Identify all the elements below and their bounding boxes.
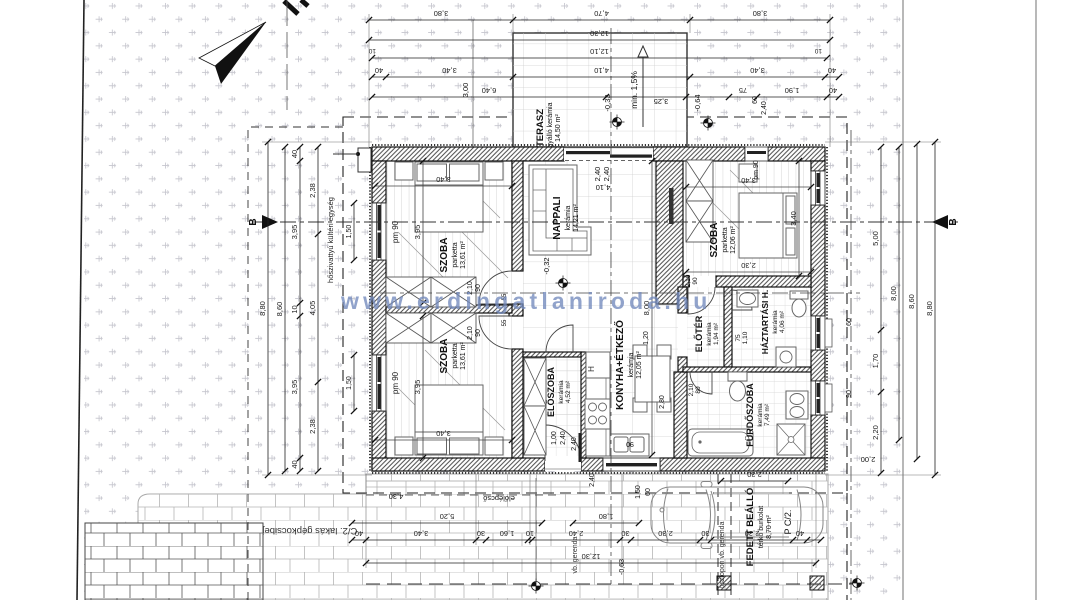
- svg-text:B: B: [248, 218, 259, 225]
- svg-text:2,40: 2,40: [761, 101, 768, 115]
- svg-text:3,80: 3,80: [434, 9, 449, 18]
- svg-text:kerámia: kerámia: [628, 352, 635, 377]
- svg-text:8,80: 8,80: [258, 301, 267, 316]
- svg-text:1,50: 1,50: [635, 485, 642, 499]
- svg-text:TERASZ: TERASZ: [535, 109, 546, 147]
- svg-text:2,00: 2,00: [861, 455, 876, 464]
- svg-text:1,00: 1,00: [551, 431, 558, 445]
- svg-text:2,20: 2,20: [871, 425, 880, 440]
- svg-text:8,60: 8,60: [907, 294, 916, 309]
- svg-text:4,06 m²: 4,06 m²: [779, 310, 786, 333]
- svg-text:HÁZTARTÁSI H.: HÁZTARTÁSI H.: [760, 290, 770, 355]
- svg-text:1,90: 1,90: [785, 86, 800, 95]
- svg-text:2,30: 2,30: [745, 529, 760, 538]
- svg-text:4,52 m²: 4,52 m²: [565, 380, 572, 403]
- svg-text:60: 60: [645, 488, 652, 496]
- svg-text:1,50: 1,50: [346, 225, 353, 239]
- svg-text:30: 30: [477, 529, 485, 538]
- svg-text:13,61 m²: 13,61 m²: [460, 342, 467, 370]
- svg-text:2,40: 2,40: [571, 437, 578, 451]
- svg-text:3,40: 3,40: [436, 175, 451, 184]
- svg-text:10: 10: [368, 47, 376, 54]
- svg-text:kerámia: kerámia: [558, 380, 565, 404]
- svg-text:-0,63: -0,63: [619, 559, 626, 575]
- svg-text:60: 60: [752, 96, 759, 104]
- svg-text:1,50: 1,50: [346, 376, 353, 390]
- svg-text:7,49 m²: 7,49 m²: [764, 403, 771, 426]
- svg-text:40: 40: [796, 529, 804, 538]
- svg-text:2,10: 2,10: [688, 383, 695, 396]
- svg-text:3,40: 3,40: [789, 211, 798, 226]
- svg-text:pm 90: pm 90: [391, 220, 400, 243]
- svg-text:30: 30: [701, 529, 709, 538]
- svg-text:3,95: 3,95: [413, 380, 422, 395]
- svg-text:6,40: 6,40: [482, 86, 497, 95]
- svg-text:90: 90: [692, 277, 699, 285]
- svg-text:3,25: 3,25: [654, 97, 669, 106]
- svg-text:2,80: 2,80: [659, 395, 666, 409]
- svg-text:40: 40: [829, 86, 837, 95]
- svg-text:5,00: 5,00: [871, 231, 880, 246]
- svg-text:30: 30: [621, 529, 629, 538]
- svg-text:12,30: 12,30: [590, 29, 609, 38]
- svg-text:pm 90: pm 90: [391, 371, 400, 394]
- svg-text:2,38: 2,38: [308, 419, 317, 434]
- svg-text:10: 10: [526, 529, 534, 538]
- svg-text:ELŐTÉR: ELŐTÉR: [693, 315, 704, 352]
- svg-text:NAPPALI: NAPPALI: [552, 196, 563, 239]
- svg-text:parketta: parketta: [722, 227, 729, 252]
- svg-text:10: 10: [290, 305, 299, 313]
- svg-text:4,10: 4,10: [596, 183, 611, 192]
- svg-text:8,60: 8,60: [275, 302, 284, 317]
- svg-text:40: 40: [375, 66, 383, 75]
- svg-text:kerámia: kerámia: [706, 322, 713, 346]
- svg-text:kerámia: kerámia: [565, 205, 572, 230]
- svg-text:parketta: parketta: [452, 242, 459, 267]
- svg-text:3,95: 3,95: [290, 380, 299, 395]
- svg-text:FEDETT BEÁLLÓ: FEDETT BEÁLLÓ: [744, 488, 756, 567]
- svg-text:C/2. lakás gépkocsibejáró: C/2. lakás gépkocsibejáró: [249, 525, 358, 536]
- svg-text:térkő burkolat: térkő burkolat: [758, 506, 765, 548]
- svg-text:40: 40: [828, 66, 836, 75]
- svg-text:4,70: 4,70: [594, 9, 609, 18]
- svg-text:3,40: 3,40: [436, 429, 451, 438]
- svg-text:60: 60: [846, 318, 853, 326]
- svg-text:75: 75: [735, 334, 742, 342]
- svg-text:2,30: 2,30: [658, 529, 673, 538]
- svg-text:3,95: 3,95: [290, 225, 299, 240]
- svg-text:ELŐSZOBA: ELŐSZOBA: [545, 367, 556, 418]
- svg-text:40: 40: [290, 150, 299, 158]
- svg-text:SZOBA: SZOBA: [439, 339, 450, 374]
- svg-text:4,10: 4,10: [594, 66, 609, 75]
- svg-text:2,38: 2,38: [308, 183, 317, 198]
- svg-text:12,30: 12,30: [582, 552, 601, 561]
- svg-text:2,30: 2,30: [741, 261, 756, 270]
- svg-text:90: 90: [475, 329, 482, 337]
- svg-text:www.erdingatlaniroda.hu: www.erdingatlaniroda.hu: [340, 288, 712, 314]
- svg-text:3,80: 3,80: [753, 9, 768, 18]
- svg-text:10: 10: [814, 47, 822, 54]
- svg-text:3,95: 3,95: [413, 225, 422, 240]
- svg-text:3,40: 3,40: [750, 66, 765, 75]
- svg-text:1,60: 1,60: [500, 529, 515, 538]
- svg-text:4,05: 4,05: [308, 301, 317, 316]
- svg-text:oszlopon vb. gerenda: oszlopon vb. gerenda: [719, 521, 726, 588]
- svg-text:2,30: 2,30: [747, 470, 762, 479]
- svg-text:H: H: [587, 366, 596, 372]
- svg-text:FÜRDŐSZOBA: FÜRDŐSZOBA: [744, 383, 755, 447]
- svg-text:90: 90: [846, 390, 853, 398]
- svg-text:5,20: 5,20: [440, 512, 455, 521]
- svg-text:2,10: 2,10: [685, 274, 692, 287]
- svg-text:40: 40: [290, 460, 299, 468]
- svg-text:1,70: 1,70: [871, 354, 880, 369]
- svg-text:1,80: 1,80: [599, 512, 614, 521]
- svg-text:SZOBA: SZOBA: [709, 223, 720, 258]
- svg-text:2,40: 2,40: [589, 473, 596, 487]
- svg-text:3,40: 3,40: [741, 176, 756, 185]
- svg-text:2,40: 2,40: [560, 431, 567, 445]
- svg-text:75: 75: [739, 86, 747, 95]
- svg-text:3,40: 3,40: [442, 66, 457, 75]
- svg-text:2,40: 2,40: [602, 167, 611, 182]
- svg-text:P C/2.: P C/2.: [783, 510, 793, 535]
- svg-text:2,40: 2,40: [569, 529, 584, 538]
- svg-text:3,40: 3,40: [414, 529, 429, 538]
- svg-text:kerámia: kerámia: [757, 403, 764, 427]
- svg-text:hőszivattyú kültéri egység: hőszivattyú kültéri egység: [326, 197, 335, 283]
- svg-text:80: 80: [695, 386, 702, 394]
- svg-text:55: 55: [502, 319, 508, 326]
- svg-text:4,30: 4,30: [389, 492, 404, 501]
- svg-text:2,10: 2,10: [467, 326, 474, 340]
- svg-text:min. 1,5%: min. 1,5%: [629, 71, 639, 109]
- svg-text:-0,32: -0,32: [542, 257, 551, 274]
- svg-text:12,06 m²: 12,06 m²: [730, 226, 737, 254]
- svg-text:1,20: 1,20: [643, 331, 650, 345]
- svg-text:8,00: 8,00: [889, 286, 898, 301]
- svg-text:8,80: 8,80: [925, 301, 934, 316]
- svg-text:40: 40: [355, 529, 363, 538]
- svg-text:kerámia: kerámia: [772, 310, 779, 334]
- svg-text:SZOBA: SZOBA: [439, 238, 450, 273]
- svg-text:14,21 m²: 14,21 m²: [573, 204, 580, 232]
- svg-text:1,94 m²: 1,94 m²: [713, 322, 720, 345]
- svg-text:B: B: [948, 218, 959, 225]
- svg-text:12,10: 12,10: [590, 47, 609, 56]
- svg-text:90: 90: [626, 440, 634, 447]
- svg-text:előlépcső: előlépcső: [483, 494, 515, 503]
- svg-text:8,70 m²: 8,70 m²: [766, 514, 773, 538]
- svg-text:12,05 m²: 12,05 m²: [636, 351, 643, 379]
- svg-text:vb. gerenda: vb. gerenda: [572, 536, 579, 573]
- svg-text:13,61 m²: 13,61 m²: [460, 241, 467, 269]
- svg-text:KONYHA+ÉTKEZŐ: KONYHA+ÉTKEZŐ: [613, 320, 626, 410]
- svg-text:3,00: 3,00: [461, 83, 470, 98]
- svg-text:parketta: parketta: [452, 343, 459, 368]
- svg-text:14,50 m²: 14,50 m²: [555, 114, 562, 142]
- svg-text:1,10: 1,10: [742, 331, 749, 344]
- svg-text:2,40: 2,40: [593, 167, 602, 182]
